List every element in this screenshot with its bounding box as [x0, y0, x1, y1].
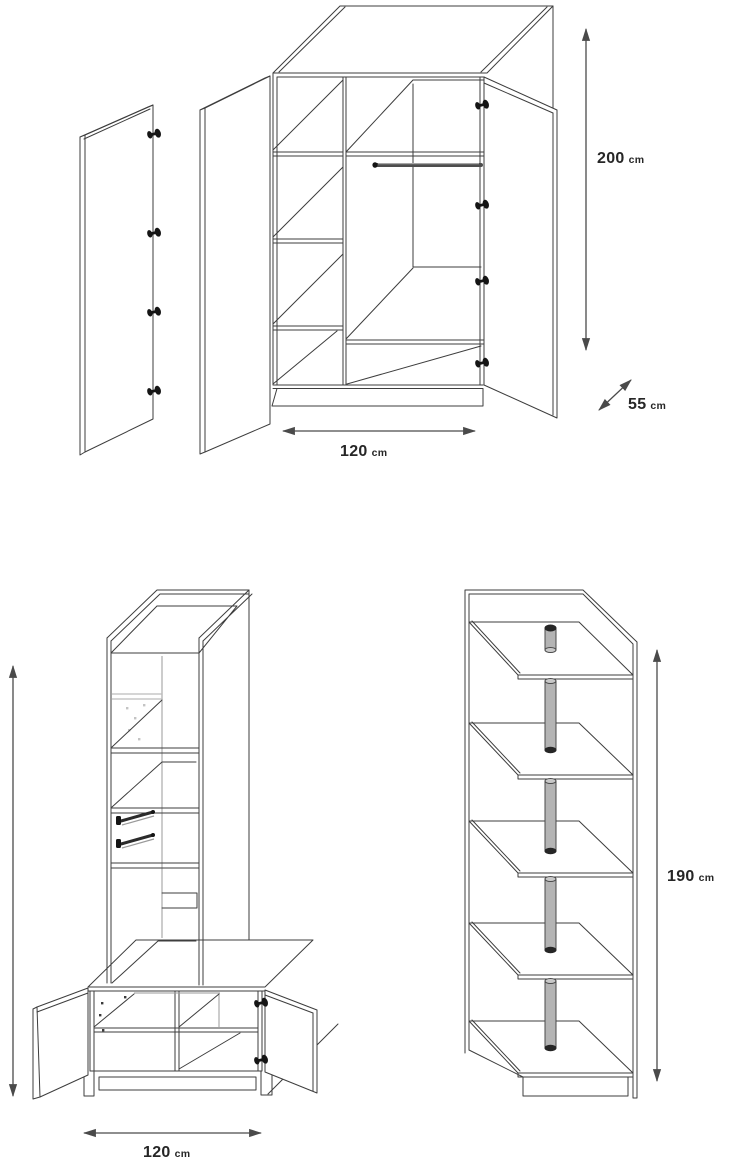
bench-unit-figure: 120cm	[13, 590, 338, 1161]
pole-segment-cap	[545, 848, 556, 854]
glass-glint	[138, 738, 140, 740]
bench-width-dimension: 120cm	[84, 1133, 261, 1161]
wardrobe-depth-label: 55cm	[628, 396, 666, 413]
depth-dimension-arrow	[599, 380, 631, 410]
bench-width-label: 120cm	[143, 1144, 190, 1161]
wardrobe-width-dimension: 120cm	[283, 431, 475, 460]
shelf-column-figure: 190cm	[465, 590, 714, 1098]
pole-segment	[545, 781, 556, 851]
pole-segment	[545, 681, 556, 750]
support-pole	[545, 625, 556, 1051]
right-door-face	[484, 77, 557, 418]
slide-bracket	[116, 839, 121, 848]
bench-top	[88, 940, 313, 991]
diagram-svg: 200cm 55cm 120cm	[0, 0, 732, 1163]
wardrobe-right-interior	[346, 80, 484, 384]
fitting-mark	[101, 1002, 103, 1004]
pole-segment-cap	[545, 747, 556, 753]
detached-door-face	[85, 105, 153, 452]
glass-shelf	[112, 694, 162, 699]
tall-cabinet	[107, 590, 252, 985]
wardrobe-detached-door	[80, 105, 162, 455]
glass-glint	[143, 704, 145, 706]
pole-segment-top	[545, 979, 556, 984]
pole-segment-cap	[545, 1045, 556, 1051]
pole-segment-top	[545, 679, 556, 684]
fitting-mark	[124, 996, 126, 998]
slide-knob	[151, 810, 155, 814]
bench-left-door-face	[37, 988, 88, 1097]
wardrobe-left-door-open	[200, 76, 270, 454]
pole-segment	[545, 879, 556, 950]
furniture-assembly-diagram: 200cm 55cm 120cm	[0, 0, 732, 1163]
wardrobe-width-label: 120cm	[340, 443, 387, 460]
bench-right-door-open	[253, 990, 317, 1093]
drawer-slides	[116, 810, 155, 848]
pole-segment-top	[545, 779, 556, 784]
pole-segment-cap	[545, 947, 556, 953]
wardrobe-right-door-open	[474, 77, 557, 418]
bench-left-door-open	[33, 988, 88, 1099]
pole-connector-base	[545, 648, 556, 653]
fitting-mark	[102, 1029, 104, 1031]
slide-bracket	[116, 816, 121, 825]
bench-back-edge	[134, 993, 220, 1027]
bench-carcass	[84, 991, 272, 1096]
wardrobe-figure: 200cm 55cm 120cm	[80, 6, 666, 460]
pole-segment	[545, 981, 556, 1048]
fitting-mark	[99, 1014, 101, 1016]
cabinet-top	[107, 590, 252, 653]
wardrobe-left-shelves	[273, 80, 343, 384]
slide-knob	[151, 833, 155, 837]
wardrobe-depth-dimension: 55cm	[599, 380, 666, 413]
glass-glint	[134, 717, 136, 719]
rail-end-cap	[372, 162, 377, 168]
pole-segment-top	[545, 877, 556, 882]
pole-connector-cap	[545, 625, 556, 631]
cabinet-shelves	[111, 700, 199, 983]
left-door-face	[205, 76, 270, 452]
shelf-column-height-dimension: 190cm	[657, 650, 714, 1081]
wardrobe-top-panel	[273, 6, 553, 73]
drawer-slide-bar	[121, 835, 153, 844]
cabinet-sides	[107, 590, 249, 985]
wardrobe-height-dimension: 200cm	[586, 29, 644, 350]
bench-right-door-face	[265, 990, 317, 1093]
shelf-height-label: 190cm	[667, 868, 714, 885]
glass-glint	[126, 707, 128, 709]
cabinet-back-support	[162, 893, 197, 908]
wardrobe-height-label: 200cm	[597, 150, 644, 167]
